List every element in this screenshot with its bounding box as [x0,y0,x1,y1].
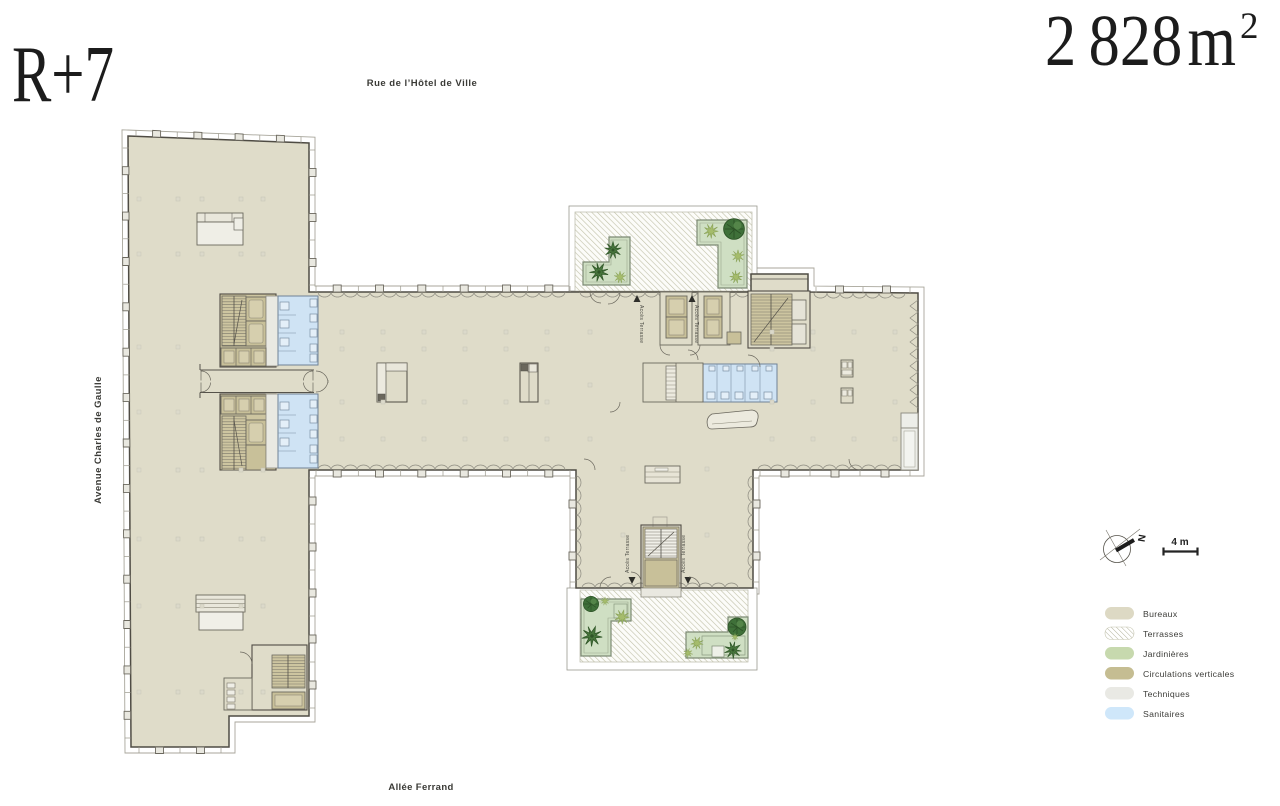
svg-text:Accès Terrasse: Accès Terrasse [638,305,644,343]
svg-text:4 m: 4 m [1171,537,1188,548]
svg-text:R+7: R+7 [12,30,114,119]
svg-text:Bureaux: Bureaux [1143,609,1178,619]
svg-text:Avenue Charles de Gaulle: Avenue Charles de Gaulle [93,376,104,504]
svg-text:2: 2 [1240,6,1259,47]
svg-text:Jardinières: Jardinières [1143,649,1189,659]
svg-text:Accès Terrasse: Accès Terrasse [693,305,699,343]
svg-text:2 828 m: 2 828 m [1045,0,1236,81]
svg-text:Rue de l’Hôtel de Ville: Rue de l’Hôtel de Ville [367,78,478,89]
svg-text:Sanitaires: Sanitaires [1143,709,1185,719]
svg-text:Allée Ferrand: Allée Ferrand [388,782,453,793]
svg-text:Terrasses: Terrasses [1143,629,1184,639]
svg-text:Accès Terrasse: Accès Terrasse [681,535,687,573]
svg-text:Accès Terrasse: Accès Terrasse [625,535,631,573]
svg-text:Techniques: Techniques [1143,689,1190,699]
svg-text:Circulations verticales: Circulations verticales [1143,669,1235,679]
